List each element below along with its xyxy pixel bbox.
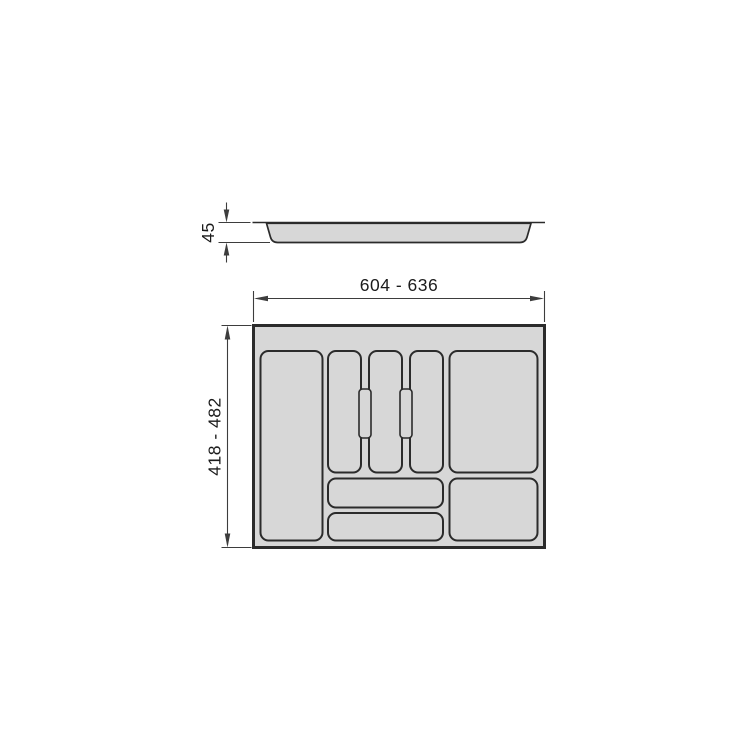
divider-pill-2 bbox=[400, 389, 412, 438]
dimension-height: 45 bbox=[198, 203, 270, 263]
dimension-depth: 418 - 482 bbox=[205, 326, 252, 548]
compartment-middle-row-2 bbox=[328, 513, 443, 541]
compartment-column-1 bbox=[328, 351, 361, 473]
compartment-left-tall bbox=[261, 351, 323, 541]
arrow-right-icon bbox=[530, 296, 544, 302]
arrow-down-icon bbox=[225, 534, 231, 548]
compartment-column-2 bbox=[369, 351, 402, 473]
drawing-canvas: 45 604 - 636 418 - 482 bbox=[0, 0, 750, 750]
dim-depth-label: 418 - 482 bbox=[205, 397, 225, 475]
compartment-column-3 bbox=[410, 351, 443, 473]
arrow-left-icon bbox=[254, 296, 268, 302]
dimension-width: 604 - 636 bbox=[254, 275, 545, 322]
compartment-middle-row-1 bbox=[328, 479, 443, 508]
arrow-up-icon bbox=[224, 243, 230, 256]
top-view bbox=[254, 326, 545, 548]
side-view bbox=[253, 223, 546, 243]
side-view-tray-body bbox=[267, 223, 532, 242]
compartment-bottom-right bbox=[450, 479, 538, 541]
divider-pill-1 bbox=[359, 389, 371, 438]
dim-height-label: 45 bbox=[198, 222, 218, 242]
cutlery-tray-technical-drawing: 45 604 - 636 418 - 482 bbox=[0, 0, 750, 750]
arrow-down-icon bbox=[224, 210, 230, 223]
arrow-up-icon bbox=[225, 326, 231, 340]
compartment-top-right bbox=[450, 351, 538, 473]
dim-width-label: 604 - 636 bbox=[360, 275, 438, 295]
